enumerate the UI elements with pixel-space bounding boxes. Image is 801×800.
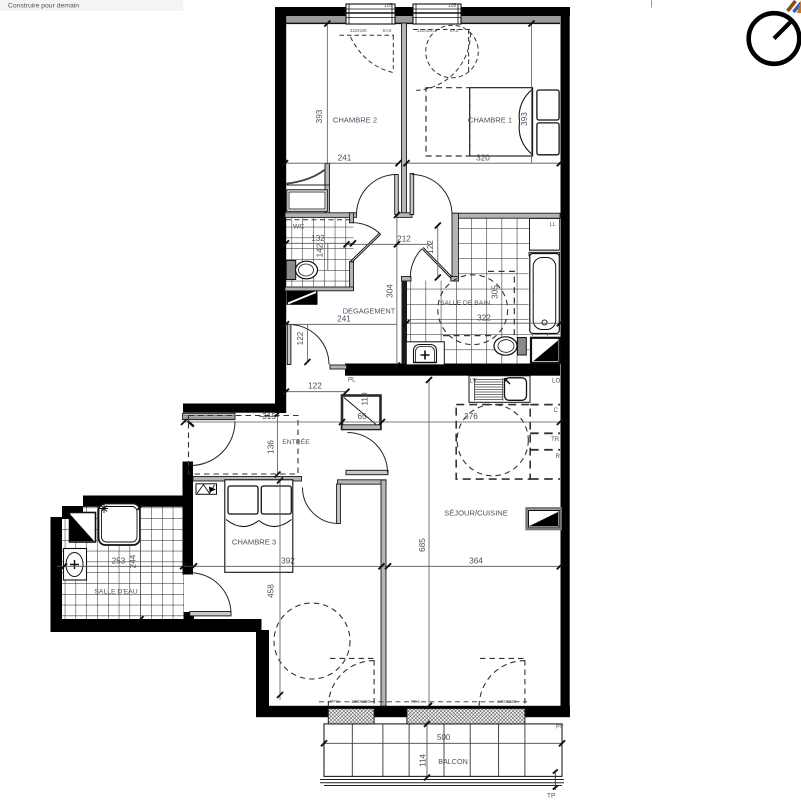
svg-text:136: 136 xyxy=(267,440,276,454)
svg-text:122: 122 xyxy=(296,331,305,345)
svg-text:305: 305 xyxy=(491,285,500,299)
svg-text:PF2: PF2 xyxy=(330,699,339,705)
svg-text:CHAMBRE 2: CHAMBRE 2 xyxy=(333,116,377,125)
svg-text:SÉJOUR/CUISINE: SÉJOUR/CUISINE xyxy=(444,509,508,518)
svg-text:R: R xyxy=(556,453,561,460)
svg-text:392: 392 xyxy=(281,556,295,565)
svg-text:241: 241 xyxy=(337,314,351,323)
svg-text:376: 376 xyxy=(464,412,478,421)
svg-text:LO: LO xyxy=(552,378,560,385)
svg-text:PF4: PF4 xyxy=(411,699,420,705)
svg-text:Construire pour demain: Construire pour demain xyxy=(8,3,79,10)
svg-text:SALLE D'EAU: SALLE D'EAU xyxy=(94,589,137,596)
svg-text:500: 500 xyxy=(437,733,451,742)
svg-text:364: 364 xyxy=(469,556,483,565)
svg-text:241: 241 xyxy=(338,154,352,163)
svg-text:114: 114 xyxy=(419,754,428,767)
svg-text:393: 393 xyxy=(315,109,324,123)
svg-text:222X100: 222X100 xyxy=(350,28,367,33)
svg-text:100X220: 100X220 xyxy=(351,699,371,705)
svg-text:132: 132 xyxy=(311,234,325,243)
svg-text:393: 393 xyxy=(520,112,529,126)
svg-text:EAS: EAS xyxy=(383,28,392,33)
svg-text:304: 304 xyxy=(385,284,394,298)
svg-text:122: 122 xyxy=(426,240,435,254)
svg-text:ENTRÉE: ENTRÉE xyxy=(282,437,310,446)
svg-text:CHAMBRE 1: CHAMBRE 1 xyxy=(468,116,512,125)
svg-text:PL: PL xyxy=(348,377,356,384)
svg-text:105: 105 xyxy=(384,3,393,9)
svg-text:65: 65 xyxy=(357,412,367,421)
svg-text:TP: TP xyxy=(547,793,555,800)
svg-text:TR: TR xyxy=(551,436,560,443)
svg-text:253: 253 xyxy=(112,556,126,565)
svg-text:320: 320 xyxy=(476,154,490,163)
svg-text:CHAMBRE 3: CHAMBRE 3 xyxy=(232,538,276,547)
svg-text:BALCON: BALCON xyxy=(438,757,468,766)
svg-text:LL: LL xyxy=(550,222,557,228)
svg-text:322: 322 xyxy=(477,314,491,323)
svg-text:105: 105 xyxy=(448,3,457,9)
svg-text:222X100: 222X100 xyxy=(417,28,434,33)
svg-text:458: 458 xyxy=(267,584,276,598)
svg-text:C: C xyxy=(554,407,559,414)
svg-text:PV: PV xyxy=(556,725,564,731)
svg-text:SALLE DE BAIN: SALLE DE BAIN xyxy=(440,300,490,307)
svg-text:WC: WC xyxy=(293,224,304,231)
svg-text:122: 122 xyxy=(308,382,322,391)
svg-text:685: 685 xyxy=(418,538,427,552)
svg-text:142: 142 xyxy=(316,243,325,257)
svg-text:244: 244 xyxy=(129,554,138,568)
svg-text:240X220: 240X220 xyxy=(497,699,517,705)
svg-text:110: 110 xyxy=(361,392,370,405)
svg-text:EAS: EAS xyxy=(450,28,459,33)
svg-text:LV: LV xyxy=(470,378,478,385)
svg-text:212: 212 xyxy=(397,235,411,244)
